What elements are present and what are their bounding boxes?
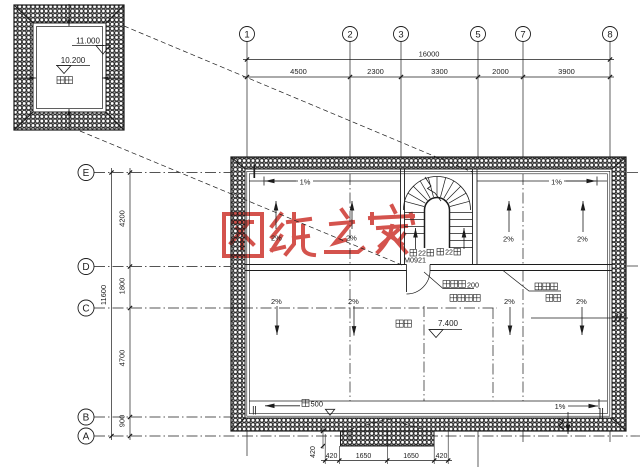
svg-text:420: 420 [436,453,448,460]
svg-text:1800: 1800 [118,278,127,295]
svg-text:1%: 1% [551,178,562,187]
svg-text:1650: 1650 [403,453,419,460]
svg-text:11600: 11600 [99,285,108,305]
svg-text:B: B [83,413,90,424]
svg-text:M0921: M0921 [404,256,426,265]
svg-text:2%: 2% [271,297,282,306]
svg-text:7: 7 [520,30,525,41]
svg-text:4500: 4500 [290,67,307,76]
svg-text:7.400: 7.400 [438,319,459,328]
svg-text:E: E [83,168,90,179]
svg-text:3: 3 [398,30,403,41]
svg-text:A: A [83,432,90,443]
svg-text:1650: 1650 [356,453,372,460]
svg-text:2: 2 [347,30,352,41]
svg-text:1%: 1% [300,178,311,187]
svg-text:2%: 2% [503,235,514,244]
svg-text:D: D [82,262,89,273]
svg-text:22: 22 [445,250,453,257]
svg-text:8: 8 [607,30,612,41]
svg-text:10.200: 10.200 [61,56,86,65]
svg-text:420: 420 [326,453,338,460]
svg-text:3300: 3300 [431,67,448,76]
svg-text:1: 1 [244,30,249,41]
svg-text:5: 5 [475,30,480,41]
svg-text:3900: 3900 [558,67,575,76]
svg-text:C: C [82,304,89,315]
svg-text:4700: 4700 [118,350,127,367]
svg-text:2%: 2% [346,234,357,243]
svg-text:16000: 16000 [419,50,440,59]
svg-text:2000: 2000 [492,67,509,76]
svg-text:200: 200 [467,280,479,289]
svg-text:2%: 2% [504,297,515,306]
svg-text:11.000: 11.000 [76,37,100,46]
svg-text:500: 500 [311,399,324,408]
svg-text:2%: 2% [577,235,588,244]
svg-text:2%: 2% [576,297,587,306]
svg-text:2300: 2300 [367,67,384,76]
svg-text:900: 900 [118,415,127,428]
svg-text:1%: 1% [555,402,566,411]
svg-text:4200: 4200 [118,210,127,227]
svg-text:420: 420 [310,446,317,458]
svg-text:2%: 2% [271,234,282,243]
svg-text:2%: 2% [348,297,359,306]
